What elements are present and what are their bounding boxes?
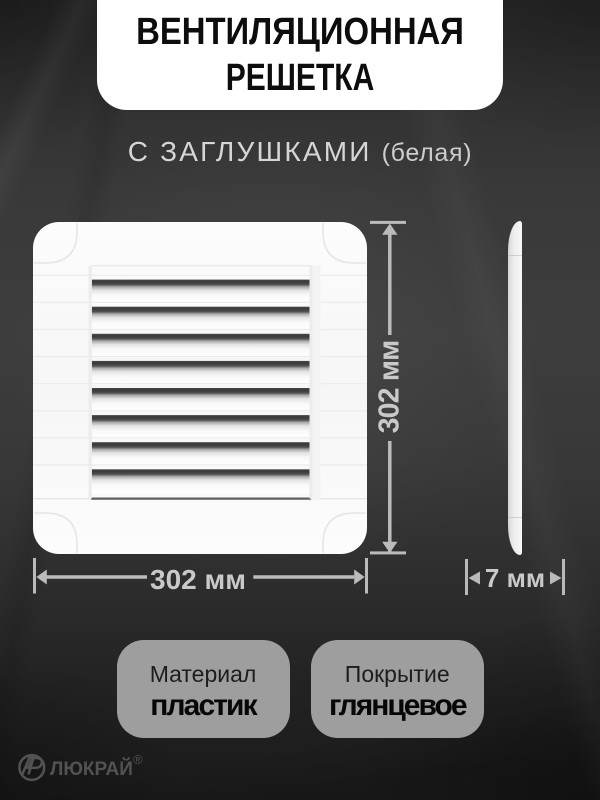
svg-text:7 мм: 7 мм	[485, 563, 545, 593]
svg-text:302 мм: 302 мм	[150, 564, 246, 595]
svg-text:ЛЮКРАЙ: ЛЮКРАЙ	[50, 758, 133, 780]
svg-text:302 мм: 302 мм	[374, 341, 406, 434]
svg-text:®: ®	[133, 752, 143, 767]
